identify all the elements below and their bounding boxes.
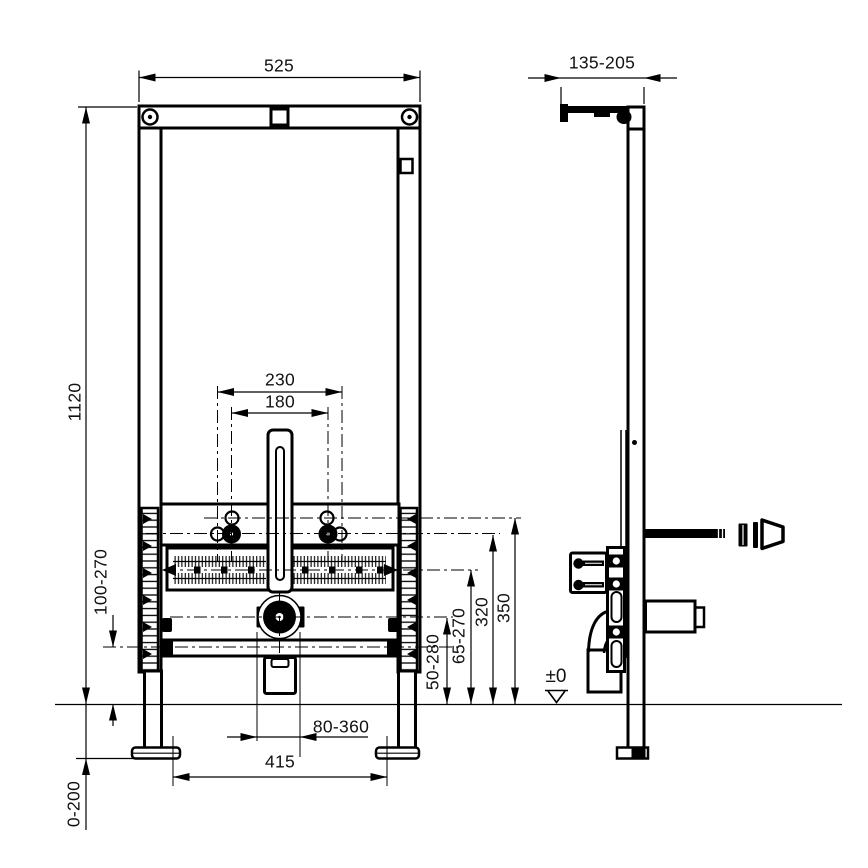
dim-label-foot-spacing: 415 bbox=[265, 753, 295, 771]
adjustment-channel bbox=[608, 548, 625, 672]
right-leg bbox=[399, 671, 416, 748]
dim-label-bolt-spacing-inner: 180 bbox=[265, 393, 295, 411]
rivet-dot bbox=[632, 440, 637, 445]
right-rail-cutout bbox=[401, 159, 413, 173]
wall-anchor-rod bbox=[645, 520, 783, 549]
drain-socket bbox=[265, 658, 296, 694]
level-symbol bbox=[545, 691, 568, 703]
top-wall-bracket bbox=[560, 104, 632, 124]
top-center-cutout bbox=[271, 109, 288, 125]
dim-label-frame-width: 525 bbox=[264, 57, 294, 75]
side-foot-plate bbox=[617, 748, 648, 759]
dim-label-support-rail-height: 100-270 bbox=[92, 549, 110, 615]
drain-connection bbox=[646, 601, 696, 632]
dim-label-drain-offset: 80-360 bbox=[313, 718, 369, 736]
dim-label-bolt-spacing-outer: 230 bbox=[265, 371, 295, 389]
center-slot bbox=[276, 447, 284, 580]
side-view bbox=[545, 104, 783, 759]
top-corner-screw-right bbox=[402, 110, 417, 125]
support-bracket bbox=[571, 553, 607, 593]
dim-label-threaded-rod-height: 65-270 bbox=[450, 608, 468, 664]
floor-level-label: ±0 bbox=[546, 666, 567, 688]
dim-label-wall-rail-depth: 135-205 bbox=[569, 54, 635, 72]
dim-label-water-connection-height: 50-280 bbox=[424, 634, 442, 690]
right-foot-plate bbox=[376, 748, 419, 759]
top-corner-screw-left bbox=[143, 110, 158, 125]
technical-drawing-page: 525 135-205 1120 230 180 100-270 50-280 … bbox=[0, 0, 868, 868]
dimension-lines bbox=[55, 71, 842, 831]
drawing-linework bbox=[0, 0, 868, 868]
dim-label-bolt-row-upper: 350 bbox=[495, 593, 513, 623]
left-leg bbox=[145, 671, 162, 748]
dim-label-floor-adjustment: 0-200 bbox=[65, 781, 83, 827]
rosette-cone bbox=[762, 520, 783, 549]
dim-label-frame-height: 1120 bbox=[66, 383, 84, 422]
dim-label-bolt-row-lower: 320 bbox=[473, 597, 491, 627]
